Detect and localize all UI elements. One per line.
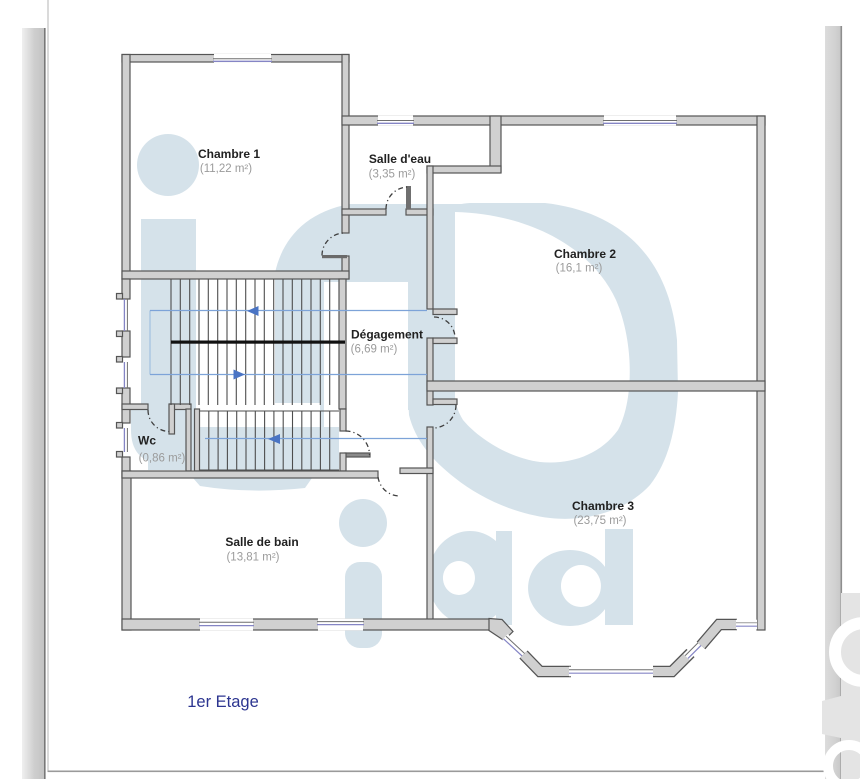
svg-text:(13,81 m²): (13,81 m²) [226,552,279,564]
svg-text:(3,35 m²): (3,35 m²) [369,169,416,181]
svg-text:Dégagement: Dégagement [351,328,423,342]
svg-text:Salle de bain: Salle de bain [225,535,298,549]
svg-text:(23,75 m²): (23,75 m²) [573,515,626,527]
svg-text:Chambre 3: Chambre 3 [572,499,634,513]
svg-text:1er Etage: 1er Etage [187,693,259,711]
svg-text:(6,69 m²): (6,69 m²) [351,344,398,356]
svg-text:Salle d'eau: Salle d'eau [369,152,431,166]
svg-text:Chambre 1: Chambre 1 [198,147,260,161]
svg-text:Chambre 2: Chambre 2 [554,247,616,261]
svg-text:Wc: Wc [138,434,156,448]
svg-text:(0,86 m²): (0,86 m²) [139,453,186,465]
svg-text:(16,1 m²): (16,1 m²) [556,263,603,275]
svg-text:(11,22 m²): (11,22 m²) [200,163,252,175]
